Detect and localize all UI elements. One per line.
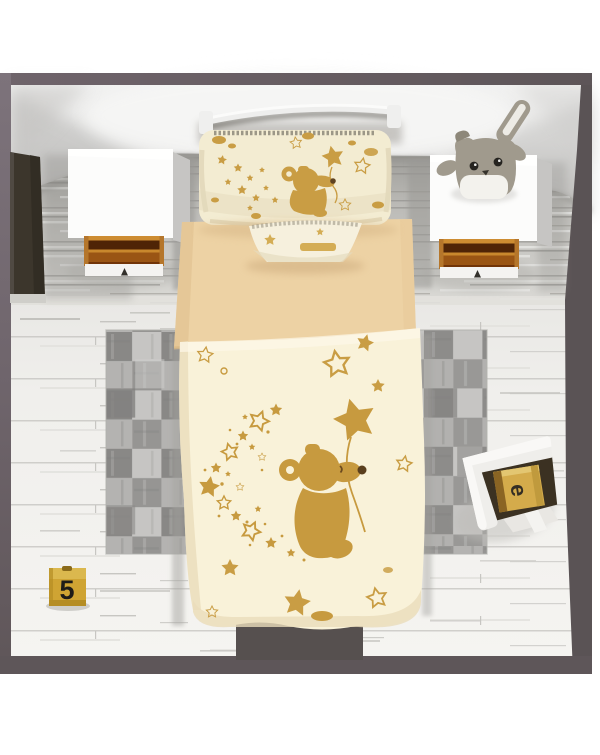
svg-text:5: 5: [59, 575, 74, 605]
